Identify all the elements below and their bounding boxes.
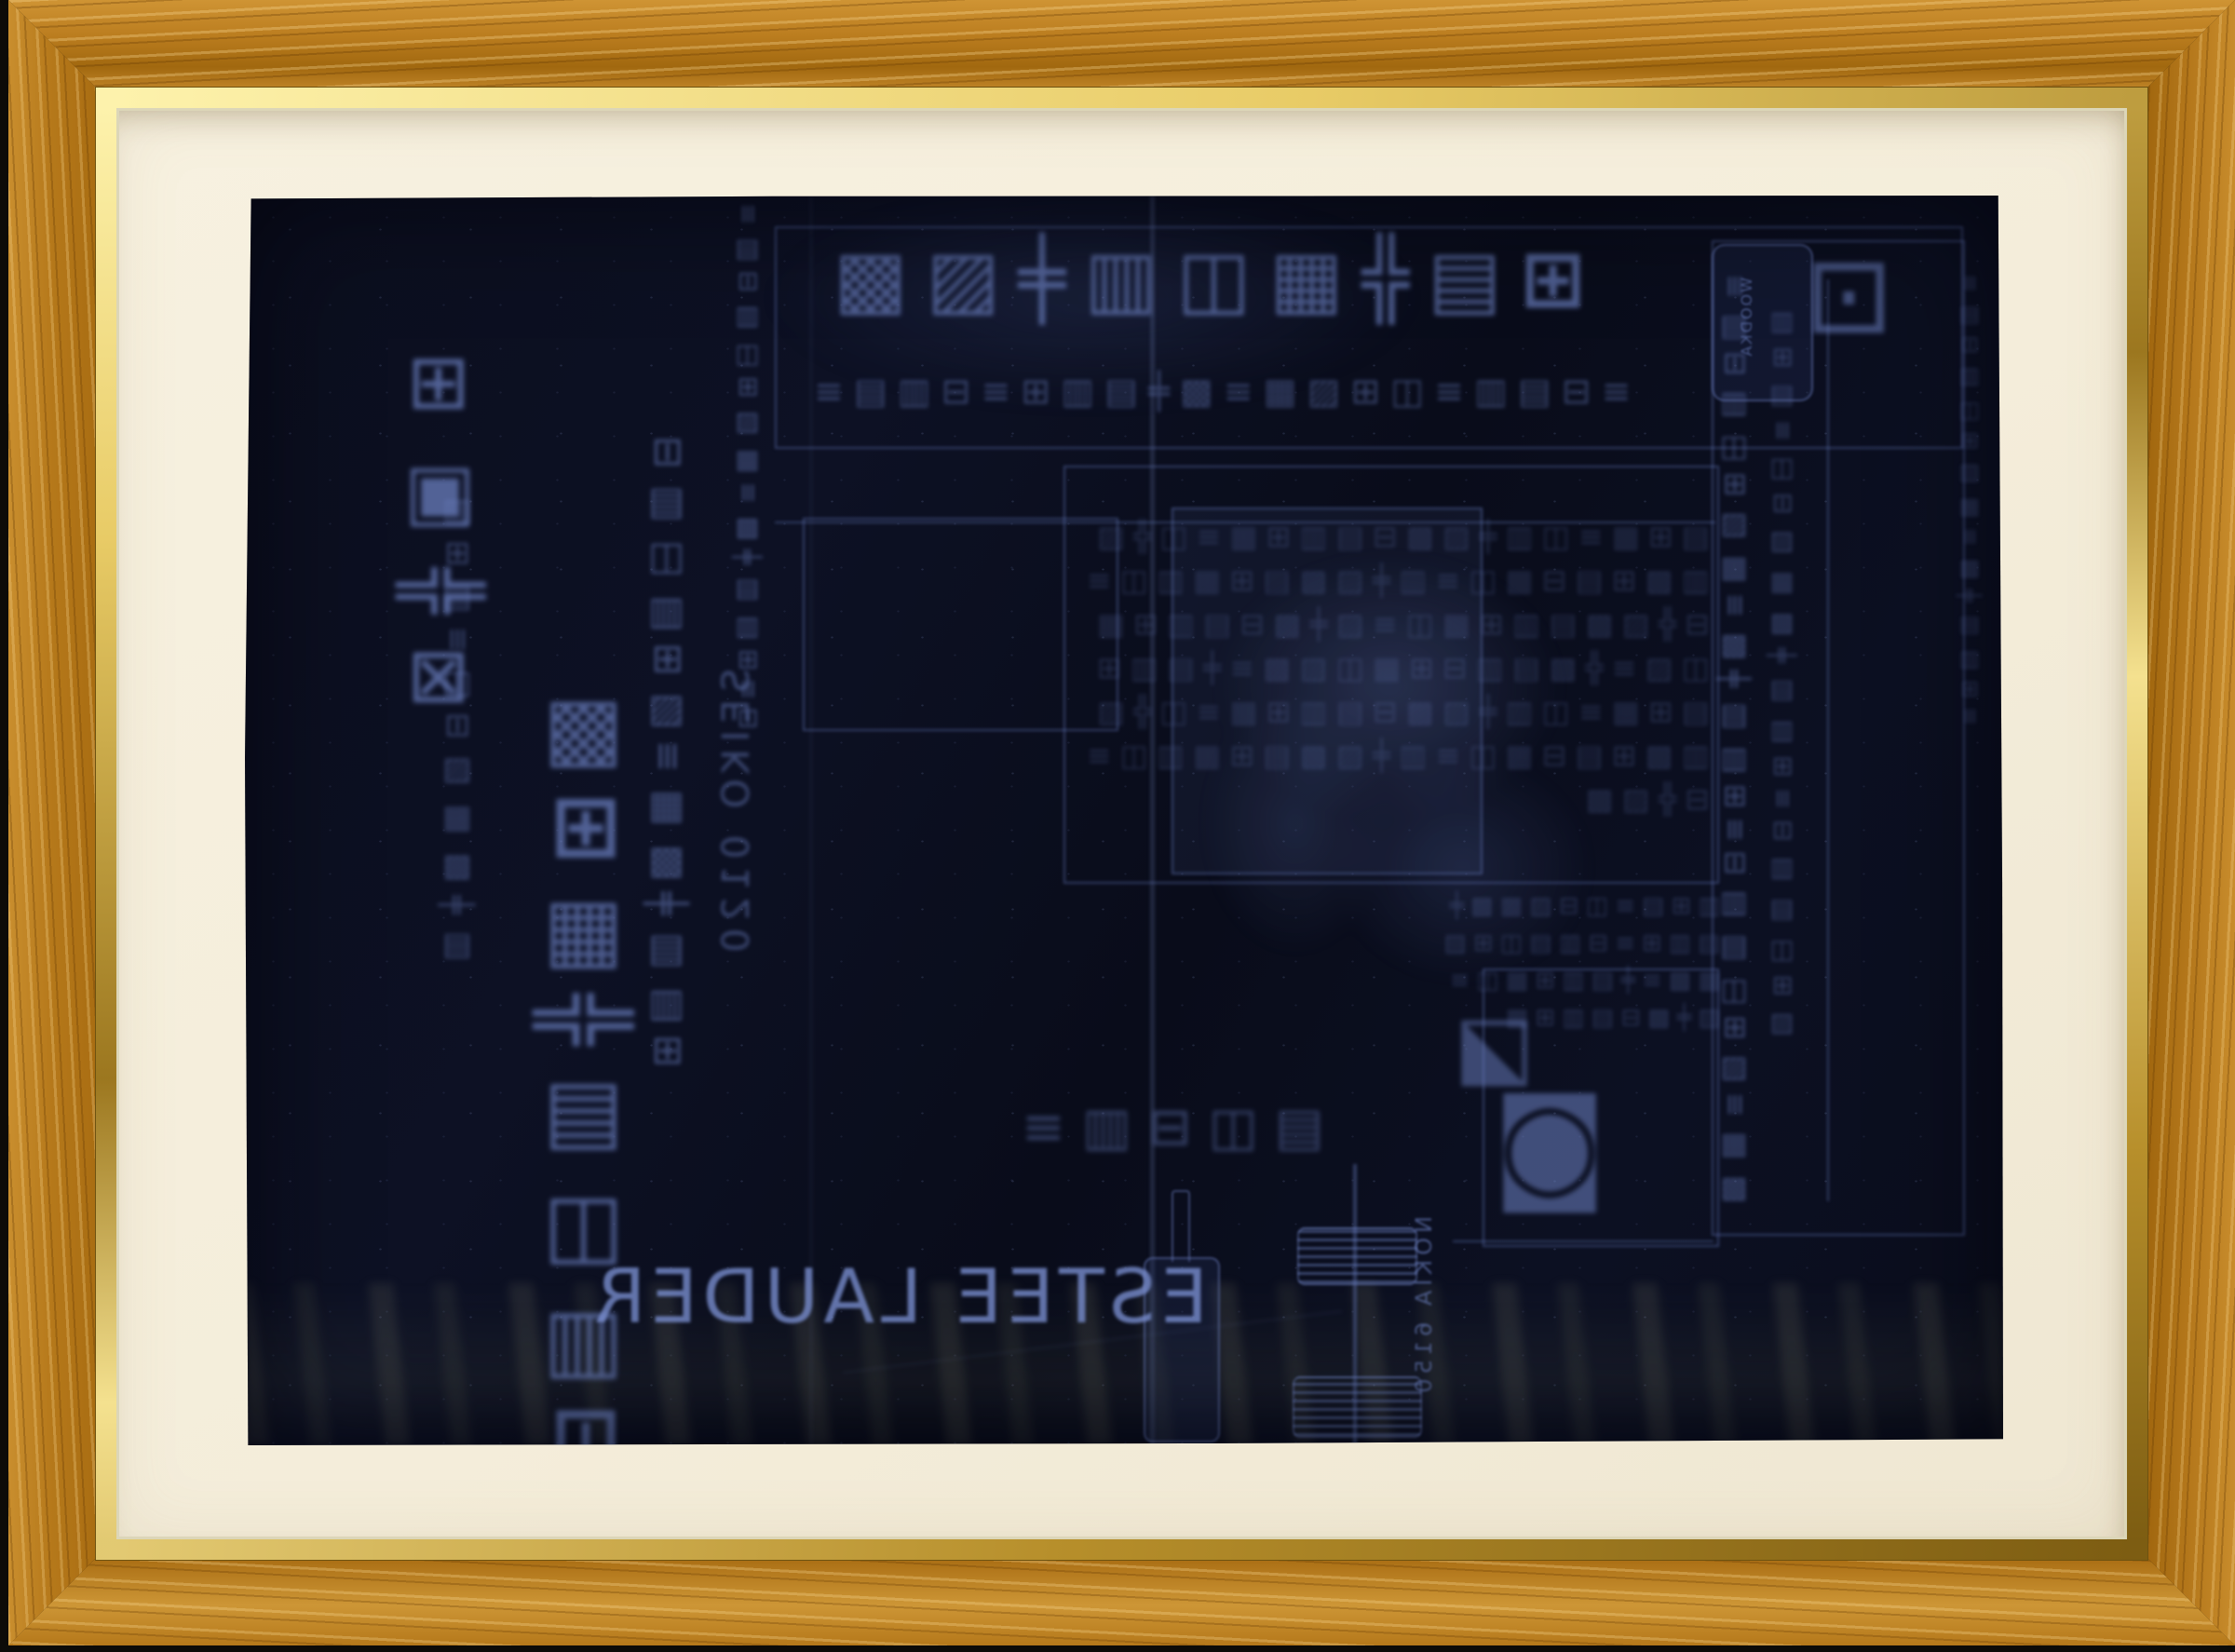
frame-wood-top (8, 0, 2235, 89)
carbon-paper-artwork: ⊞▤╬▦◫▥╪▧▩ ≡⊟▤▥≡◫⊞▧▦≡▩╪▤▥⊞≡⊟▥▤≡ ⊞▣╬⊠ ≡▤⊟▥… (245, 196, 2003, 1445)
frame-wood-bottom (8, 1556, 2235, 1645)
frame-wood-left (8, 0, 98, 1645)
framed-artwork-photo: { "image_type": "photograph of a framed … (0, 0, 2235, 1652)
scan-edge-bottom (0, 1645, 2235, 1652)
paper-vignette (245, 196, 2003, 1445)
frame-wood-right (2146, 0, 2235, 1645)
scan-edge-left (0, 0, 8, 1652)
